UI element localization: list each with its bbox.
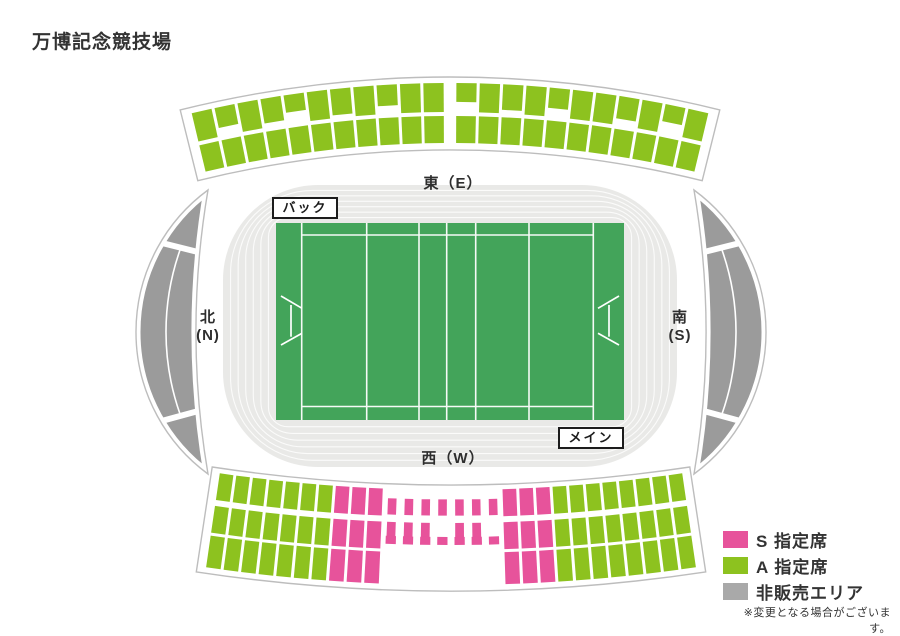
seat-block — [506, 536, 517, 544]
seat-block — [330, 88, 353, 116]
seat-block — [500, 117, 521, 145]
direction-label-south: 南 (S) — [652, 309, 708, 345]
seat-block — [472, 499, 481, 515]
seat-block — [329, 549, 346, 582]
seat-block — [555, 519, 571, 547]
seat-block — [334, 486, 350, 514]
seat-block — [505, 552, 521, 585]
seat-block — [403, 536, 413, 544]
seat-block — [455, 523, 464, 538]
main-stand-label: メイン — [558, 427, 624, 449]
seat-block — [504, 522, 519, 550]
seat-block — [377, 84, 398, 106]
seat-block — [353, 86, 375, 117]
main-stand-west — [196, 467, 705, 591]
seat-block — [332, 519, 348, 547]
seat-block — [455, 499, 464, 515]
seat-block — [386, 536, 397, 544]
direction-label-north: 北 (N) — [180, 309, 236, 345]
seat-block — [503, 489, 518, 517]
seat-block — [569, 485, 585, 513]
seat-block — [478, 116, 498, 144]
seat-block — [605, 514, 622, 542]
seat-block — [456, 116, 476, 143]
back-stand-east — [180, 77, 720, 181]
legend-note: ※変更となる場合がございます。 — [723, 604, 891, 636]
seat-block — [311, 547, 328, 580]
seat-block — [616, 96, 640, 122]
seat-block — [455, 537, 465, 545]
seat-block — [502, 84, 524, 111]
seat-block — [421, 499, 430, 515]
stand-outline — [180, 77, 720, 181]
seat-block — [421, 523, 430, 538]
seat-block — [284, 93, 306, 113]
seat-block — [538, 520, 554, 548]
seat-block — [522, 119, 544, 148]
seat-block — [472, 537, 482, 545]
seat-block — [347, 550, 363, 583]
seat-block — [593, 93, 617, 125]
seat-block — [404, 499, 413, 515]
seat-block — [519, 488, 534, 516]
seat-block — [368, 488, 383, 516]
seat-block — [423, 83, 444, 112]
seat-block — [351, 487, 366, 515]
seat-block — [523, 535, 534, 544]
seat-block — [260, 96, 284, 124]
seat-block — [366, 521, 382, 549]
direction-label-east: 東（E） — [393, 172, 513, 193]
seat-block — [602, 482, 619, 510]
seat-block — [280, 514, 297, 542]
back-stand-label: バック — [272, 197, 338, 219]
seat-block — [420, 537, 430, 545]
a-seat-swatch — [723, 557, 748, 574]
seat-block — [317, 485, 333, 513]
seat-block — [545, 120, 567, 149]
direction-label-west: 西（W） — [393, 447, 513, 468]
seat-block — [289, 125, 312, 155]
seat-block — [364, 551, 380, 584]
seat-block — [522, 551, 538, 584]
seat-block — [334, 120, 356, 149]
seat-block — [387, 522, 396, 537]
seat-block — [489, 499, 498, 515]
seat-block — [438, 499, 447, 515]
seat-block — [525, 86, 547, 117]
stadium-seating-chart: 万博記念競技場 東（E） 西（W） 北 (N) 南 (S) バック メイン S … — [0, 0, 900, 636]
seat-block — [300, 483, 316, 511]
seat-block — [307, 90, 330, 121]
seat-block — [567, 123, 590, 152]
seat-block — [472, 523, 481, 538]
seat-block — [456, 83, 476, 102]
seat-block — [539, 550, 555, 583]
seat-block — [294, 546, 311, 579]
seat-block — [401, 116, 421, 144]
seat-block — [283, 482, 300, 510]
legend-item-a: A 指定席 — [723, 552, 891, 578]
seat-block — [297, 516, 314, 544]
seat-block — [589, 125, 612, 155]
seat-block — [349, 520, 365, 548]
seat-block — [424, 116, 444, 143]
seat-block — [489, 536, 499, 544]
seat-block — [591, 546, 608, 579]
legend-item-unsold: 非販売エリア — [723, 578, 891, 604]
seat-block — [589, 516, 606, 544]
seat-block — [536, 487, 551, 515]
seat-block — [553, 486, 569, 514]
seat-block — [574, 547, 591, 580]
seat-block — [379, 117, 400, 145]
unsold-swatch — [723, 583, 748, 600]
seat-block — [437, 537, 447, 545]
seat-block — [215, 104, 239, 128]
seat-block — [572, 518, 588, 546]
seat-block — [479, 83, 500, 113]
seat-block — [556, 549, 573, 582]
seat-block — [548, 88, 570, 110]
seat-block — [387, 498, 396, 515]
s-seat-swatch — [723, 531, 748, 548]
seat-block — [311, 123, 334, 152]
seat-block — [521, 521, 537, 549]
seat-block — [570, 90, 593, 121]
seat-block — [400, 83, 421, 113]
seat-block — [586, 483, 602, 511]
legend: S 指定席 A 指定席 非販売エリア ※変更となる場合がございます。 — [723, 526, 891, 636]
seat-block — [404, 522, 413, 537]
page-title: 万博記念競技場 — [32, 27, 172, 54]
seat-block — [314, 518, 330, 546]
rugby-field — [276, 223, 624, 420]
seat-block — [356, 119, 378, 148]
legend-item-s: S 指定席 — [723, 526, 891, 552]
